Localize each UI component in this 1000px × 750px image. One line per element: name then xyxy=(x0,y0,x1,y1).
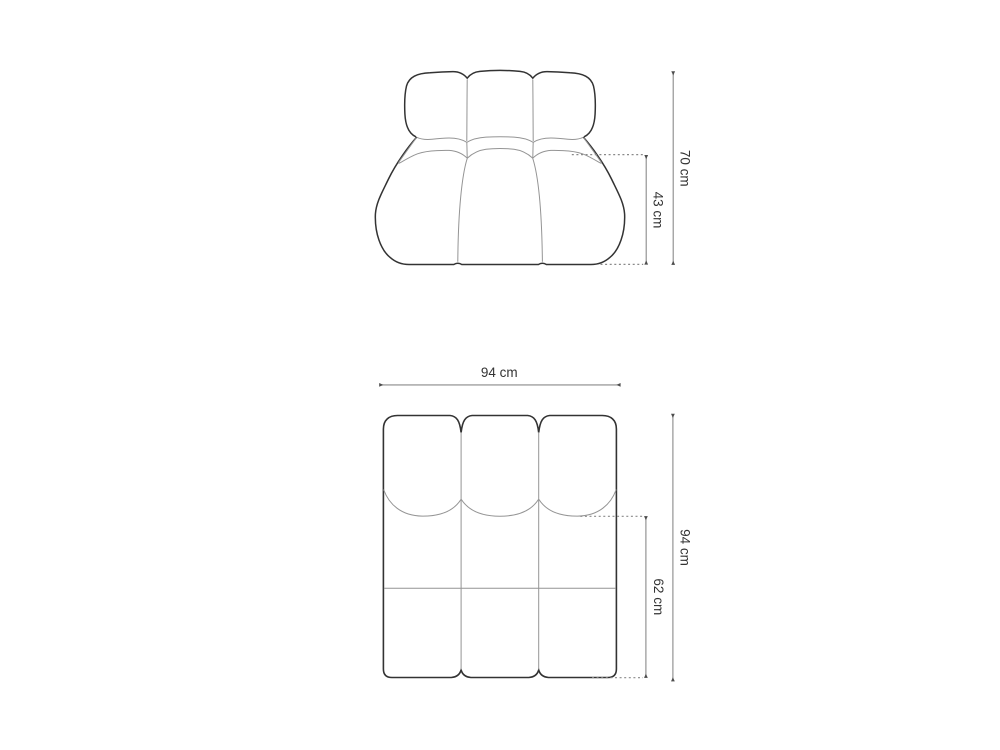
svg-text:70 cm: 70 cm xyxy=(677,150,692,187)
svg-text:43 cm: 43 cm xyxy=(651,192,666,229)
svg-text:94 cm: 94 cm xyxy=(678,529,693,566)
svg-text:94 cm: 94 cm xyxy=(481,365,518,380)
svg-text:62 cm: 62 cm xyxy=(651,578,666,615)
